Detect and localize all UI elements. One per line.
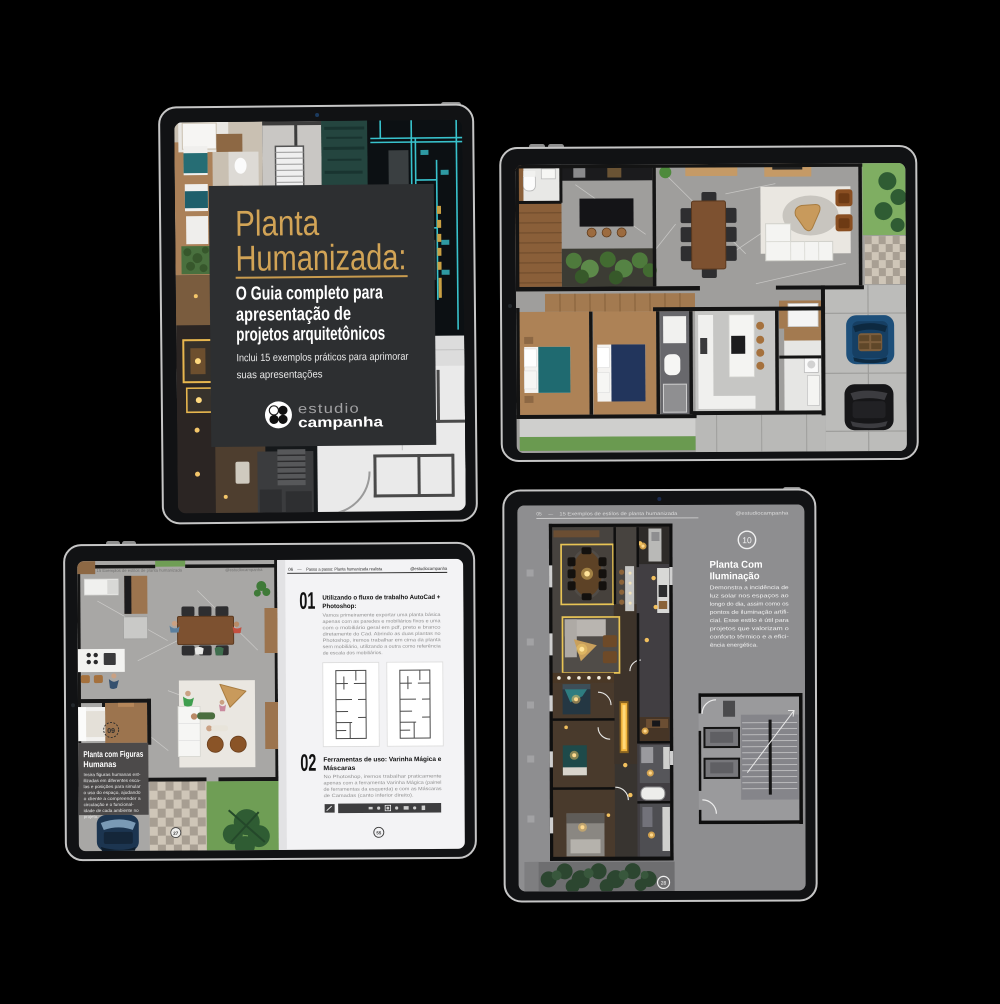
svg-text:de escala dos mobiliários.: de escala dos mobiliários. [323, 650, 383, 655]
svg-text:projetos que valorizam o: projetos que valorizam o [710, 626, 789, 632]
svg-text:las e posições para simular: las e posições para simular [84, 784, 142, 789]
svg-text:15 Exemplos de estilos de plan: 15 Exemplos de estilos de planta humaniz… [559, 511, 677, 517]
svg-text:Máscaras: Máscaras [323, 765, 356, 772]
svg-text:Humanas: Humanas [83, 759, 116, 769]
svg-text:de ferramentas da esquerda) e: de ferramentas da esquerda) e com as Más… [324, 786, 443, 792]
svg-text:ência energética.: ência energética. [710, 643, 758, 649]
svg-text:Planta Com: Planta Com [710, 560, 763, 571]
svg-text:Insira figuras humanas est-: Insira figuras humanas est- [83, 772, 141, 777]
svg-text:Utilizando o fluxo de trabalho: Utilizando o fluxo de trabalho AutoCad + [322, 594, 440, 602]
svg-text:de Camadas (canto inferior dir: de Camadas (canto inferior direito). [324, 793, 414, 799]
svg-text:o uso do espaço, ajudando: o uso do espaço, ajudando [84, 790, 142, 795]
svg-text:Photoshop, iremos trabalhar em: Photoshop, iremos trabalhar em cima da p… [323, 637, 441, 643]
svg-text:05: 05 [536, 511, 542, 517]
svg-text:apenas com a ferramenta Varinh: apenas com a ferramenta Varinha Mágica (… [323, 780, 441, 786]
svg-text:apresentação de: apresentação de [236, 304, 351, 326]
svg-text:projetos arquitetônicos: projetos arquitetônicos [236, 323, 385, 345]
svg-text:Planta com Figuras: Planta com Figuras [83, 749, 143, 759]
svg-text:conforto térmico e a efici-: conforto térmico e a efici- [710, 634, 789, 640]
svg-text:No Photoshop, iremos trabalhar: No Photoshop, iremos trabalhar praticame… [323, 773, 442, 779]
svg-text:55: 55 [376, 830, 381, 835]
svg-text:idade de cada ambiente no: idade de cada ambiente no [84, 808, 140, 813]
svg-text:28: 28 [661, 881, 667, 887]
svg-text:06: 06 [288, 567, 293, 572]
svg-text:circulação e o funcional-: circulação e o funcional- [84, 802, 135, 807]
svg-text:ilizadas em diferentes esca-: ilizadas em diferentes esca- [83, 778, 141, 783]
svg-text:com o mobiliário geral em pdf,: com o mobiliário geral em pdf, preto e b… [323, 625, 442, 631]
svg-text:01: 01 [299, 588, 315, 615]
svg-text:Ferramentas de uso: Varinha Má: Ferramentas de uso: Varinha Mágica e [323, 756, 441, 764]
svg-text:09: 09 [107, 728, 115, 735]
svg-text:@estudiocampanha: @estudiocampanha [410, 566, 448, 571]
svg-text:Inclui 15 exemplos práticos pa: Inclui 15 exemplos práticos para aprimor… [236, 351, 409, 365]
svg-text:projeto.: projeto. [84, 814, 99, 819]
svg-text:O Guia completo para: O Guia completo para [236, 282, 384, 304]
svg-text:diretamente do Cad. Abrindo as: diretamente do Cad. Abrindo as duas plan… [323, 631, 441, 637]
svg-text:@estudiocampanha: @estudiocampanha [225, 567, 263, 572]
svg-text:Iluminação: Iluminação [710, 571, 760, 582]
svg-text:Humanizada:: Humanizada: [235, 236, 406, 279]
svg-text:sem mobiliário, utilizando a o: sem mobiliário, utilizando a outra como … [323, 643, 441, 649]
svg-text:campanha: campanha [298, 413, 383, 430]
svg-text:suas apresentações: suas apresentações [237, 368, 323, 381]
svg-text:—: — [297, 567, 302, 572]
svg-text:Demonstra a incidência de: Demonstra a incidência de [710, 585, 789, 591]
svg-text:o cliente a compreender a: o cliente a compreender a [84, 796, 142, 801]
svg-text:luz solar nos espaços ao: luz solar nos espaços ao [710, 593, 789, 599]
svg-text:apenas com as paredes e mobili: apenas com as paredes e mobiliários fixo… [322, 618, 440, 624]
svg-text:cial. Esse estilo é útil para: cial. Esse estilo é útil para [710, 618, 789, 624]
svg-text:—: — [548, 512, 553, 517]
svg-text:pontos de iluminação artifi-: pontos de iluminação artifi- [710, 610, 789, 616]
svg-text:27: 27 [173, 831, 179, 836]
svg-text:Passo a passo: Planta humaniza: Passo a passo: Planta humanizada realist… [306, 566, 383, 571]
svg-text:Vamos primeiramente exportar u: Vamos primeiramente exportar uma planta … [322, 612, 440, 618]
svg-text:Photoshop:: Photoshop: [322, 603, 356, 610]
svg-text:@estudiocampanha: @estudiocampanha [735, 511, 788, 517]
svg-text:02: 02 [300, 750, 316, 777]
svg-text:10: 10 [742, 535, 752, 545]
svg-text:longo do dia, assim como os: longo do dia, assim como os [710, 601, 789, 607]
